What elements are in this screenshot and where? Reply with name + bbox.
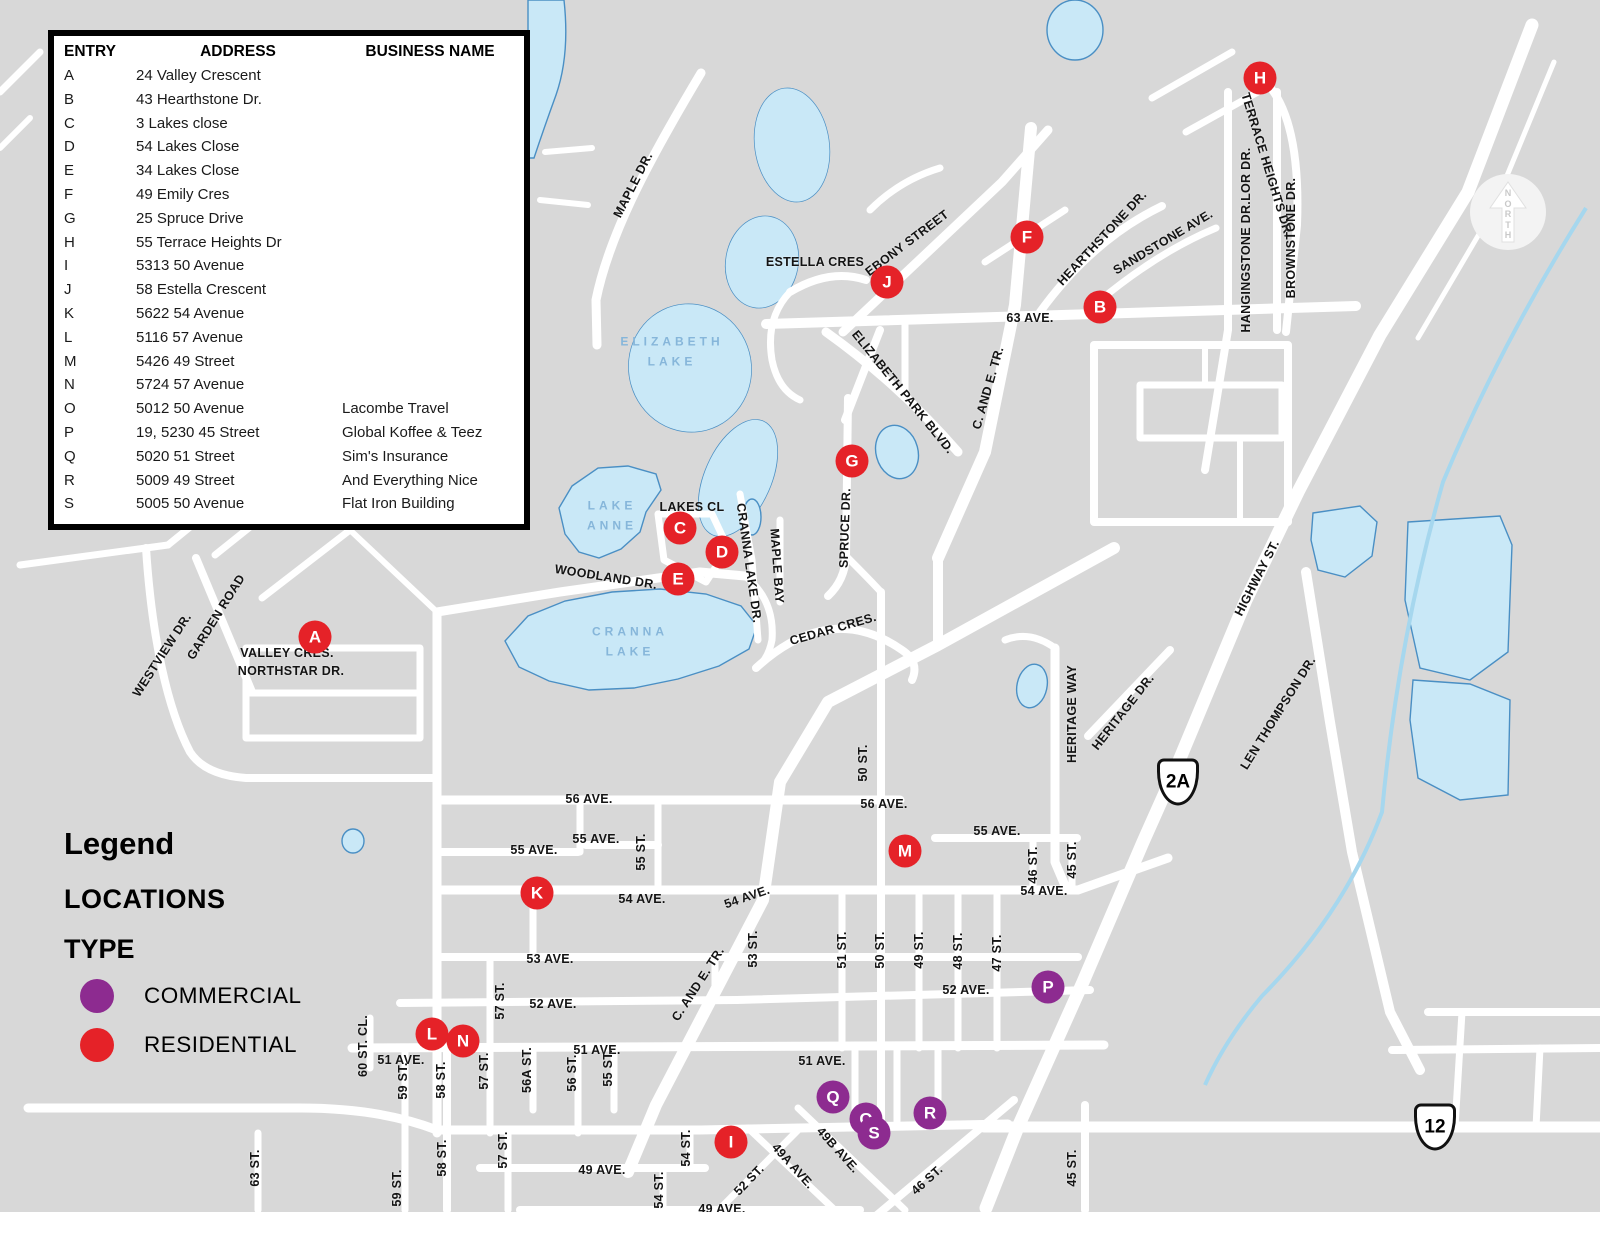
street-label: 58 ST. xyxy=(435,1139,449,1176)
col-header-address: ADDRESS xyxy=(134,43,342,61)
street-label: 55 ST. xyxy=(601,1049,615,1086)
creek xyxy=(1205,208,1586,1085)
cell-entry: P xyxy=(64,421,134,445)
cell-address: 19, 5230 45 Street xyxy=(134,421,342,445)
cell-business xyxy=(342,302,518,326)
cell-address: 58 Estella Crescent xyxy=(134,278,342,302)
street-label: 54 ST. xyxy=(679,1129,693,1166)
street-label: 54 AVE. xyxy=(1020,884,1067,898)
cell-entry: H xyxy=(64,231,134,255)
cell-entry: D xyxy=(64,135,134,159)
cell-address: 5426 49 Street xyxy=(134,350,342,374)
street-label: 47 ST. xyxy=(990,934,1004,971)
street-label: 50 ST. xyxy=(856,744,870,781)
cell-entry: K xyxy=(64,302,134,326)
commercial-dot-icon xyxy=(80,979,114,1013)
table-row: S5005 50 AvenueFlat Iron Building xyxy=(64,492,518,516)
cell-entry: Q xyxy=(64,445,134,469)
cell-business: Lacombe Travel xyxy=(342,397,518,421)
map-marker-I[interactable]: I xyxy=(715,1126,748,1159)
legend-title: Legend xyxy=(64,826,302,862)
table-header-row: ENTRY ADDRESS BUSINESS NAME xyxy=(54,36,524,62)
cell-entry: M xyxy=(64,350,134,374)
table-row: R5009 49 StreetAnd Everything Nice xyxy=(64,469,518,493)
map-marker-E[interactable]: E xyxy=(662,563,695,596)
street-label: 54 AVE. xyxy=(618,892,665,906)
cell-business: Global Koffee & Teez xyxy=(342,421,518,445)
table-row: J58 Estella Crescent xyxy=(64,278,518,302)
col-header-entry: ENTRY xyxy=(64,43,134,61)
cell-business xyxy=(342,112,518,136)
street-label: 55 AVE. xyxy=(510,843,557,857)
street-label: 59 ST. xyxy=(396,1062,410,1099)
street-label: 57 ST. xyxy=(493,982,507,1019)
street-label: 63 ST. xyxy=(248,1149,262,1186)
street-label: 53 AVE. xyxy=(526,952,573,966)
cell-entry: I xyxy=(64,254,134,278)
cell-address: 25 Spruce Drive xyxy=(134,207,342,231)
map-marker-Q[interactable]: Q xyxy=(817,1081,850,1114)
lake-name-label: CRANNALAKE xyxy=(592,622,668,663)
cell-entry: R xyxy=(64,469,134,493)
street-label: 63 AVE. xyxy=(1006,311,1053,325)
map-marker-H[interactable]: H xyxy=(1244,62,1277,95)
legend-subtitle: LOCATIONS xyxy=(64,884,302,915)
cell-address: 43 Hearthstone Dr. xyxy=(134,88,342,112)
table-row: P19, 5230 45 StreetGlobal Koffee & Teez xyxy=(64,421,518,445)
map-marker-S[interactable]: S xyxy=(858,1117,891,1150)
north-indicator: NORTH xyxy=(1470,174,1546,250)
street-label: 59 ST. xyxy=(390,1169,404,1206)
cell-business xyxy=(342,159,518,183)
street-label: 53 ST. xyxy=(746,930,760,967)
lake-name-label: LAKEANNE xyxy=(587,496,637,537)
table-row: F49 Emily Cres xyxy=(64,183,518,207)
cell-entry: O xyxy=(64,397,134,421)
street-label: 45 ST. xyxy=(1065,841,1079,878)
table-row: K5622 54 Avenue xyxy=(64,302,518,326)
legend-item-label: COMMERCIAL xyxy=(144,983,302,1009)
table-row: M5426 49 Street xyxy=(64,350,518,374)
cell-business: Sim's Insurance xyxy=(342,445,518,469)
street-label: HERITAGE WAY xyxy=(1065,665,1079,763)
locations-table: ENTRY ADDRESS BUSINESS NAME A24 Valley C… xyxy=(48,30,530,530)
cell-entry: J xyxy=(64,278,134,302)
map-marker-C[interactable]: C xyxy=(664,512,697,545)
map-marker-D[interactable]: D xyxy=(706,536,739,569)
street-label: 54 ST. xyxy=(652,1171,666,1208)
street-label: 48 ST. xyxy=(951,932,965,969)
cell-business xyxy=(342,207,518,231)
table-row: Q5020 51 StreetSim's Insurance xyxy=(64,445,518,469)
cell-address: 5622 54 Avenue xyxy=(134,302,342,326)
cell-address: 54 Lakes Close xyxy=(134,135,342,159)
table-row: N5724 57 Avenue xyxy=(64,373,518,397)
street-label: 46 ST. xyxy=(1026,846,1040,883)
street-label: 52 AVE. xyxy=(529,997,576,1011)
cell-entry: A xyxy=(64,64,134,88)
cell-business xyxy=(342,373,518,397)
cell-entry: S xyxy=(64,492,134,516)
street-label: NORTHSTAR DR. xyxy=(238,664,344,678)
map-marker-M[interactable]: M xyxy=(889,835,922,868)
cell-address: 3 Lakes close xyxy=(134,112,342,136)
cell-entry: B xyxy=(64,88,134,112)
street-label: 58 ST. xyxy=(434,1061,448,1098)
cell-entry: L xyxy=(64,326,134,350)
map-marker-G[interactable]: G xyxy=(836,445,869,478)
table-body: A24 Valley CrescentB43 Hearthstone Dr.C3… xyxy=(54,62,524,516)
legend-items: COMMERCIALRESIDENTIAL xyxy=(64,978,302,1063)
cell-business: And Everything Nice xyxy=(342,469,518,493)
cell-address: 24 Valley Crescent xyxy=(134,64,342,88)
street-label: 52 AVE. xyxy=(942,983,989,997)
map-marker-P[interactable]: P xyxy=(1032,971,1065,1004)
cell-business xyxy=(342,64,518,88)
cell-address: 5009 49 Street xyxy=(134,469,342,493)
cell-business xyxy=(342,350,518,374)
map-marker-R[interactable]: R xyxy=(914,1097,947,1130)
street-label: SPRUCE DR. xyxy=(837,488,854,569)
cell-address: 5116 57 Avenue xyxy=(134,326,342,350)
north-label: NORTH xyxy=(1504,188,1511,241)
street-label: BROWNSTONE DR. xyxy=(1284,178,1298,299)
street-label: 60 ST. CL. xyxy=(356,1015,370,1077)
cell-business xyxy=(342,88,518,112)
cell-entry: F xyxy=(64,183,134,207)
residential-dot-icon xyxy=(80,1028,114,1062)
cell-business: Flat Iron Building xyxy=(342,492,518,516)
street-label: 55 AVE. xyxy=(572,832,619,846)
map-marker-F[interactable]: F xyxy=(1011,221,1044,254)
table-row: O5012 50 AvenueLacombe Travel xyxy=(64,397,518,421)
cell-address: 5724 57 Avenue xyxy=(134,373,342,397)
street-label: 50 ST. xyxy=(873,931,887,968)
col-header-business: BUSINESS NAME xyxy=(342,43,518,61)
legend-panel: Legend LOCATIONS TYPE COMMERCIALRESIDENT… xyxy=(64,826,302,1063)
street-label: 49 ST. xyxy=(912,931,926,968)
legend-type-label: TYPE xyxy=(64,934,302,965)
map-marker-J[interactable]: J xyxy=(871,266,904,299)
map-page: MAPLE DR.ESTELLA CRESEBONY STREETHEARTHS… xyxy=(0,0,1600,1236)
cell-entry: N xyxy=(64,373,134,397)
street-label: 56A ST. xyxy=(520,1047,534,1093)
street-label: 45 ST. xyxy=(1065,1149,1079,1186)
cell-address: 34 Lakes Close xyxy=(134,159,342,183)
cell-business xyxy=(342,135,518,159)
table-row: C3 Lakes close xyxy=(64,112,518,136)
table-row: B43 Hearthstone Dr. xyxy=(64,88,518,112)
cell-address: 5012 50 Avenue xyxy=(134,397,342,421)
map-marker-N[interactable]: N xyxy=(447,1025,480,1058)
table-row: E34 Lakes Close xyxy=(64,159,518,183)
lake-name-label: ELIZABETHLAKE xyxy=(620,332,723,373)
cell-address: 5020 51 Street xyxy=(134,445,342,469)
street-label: 55 ST. xyxy=(634,833,648,870)
cell-entry: G xyxy=(64,207,134,231)
table-row: L5116 57 Avenue xyxy=(64,326,518,350)
cell-address: 5313 50 Avenue xyxy=(134,254,342,278)
street-label: 49 AVE. xyxy=(698,1202,745,1212)
table-row: G25 Spruce Drive xyxy=(64,207,518,231)
street-label: 57 ST. xyxy=(477,1052,491,1089)
cell-business xyxy=(342,254,518,278)
city-map[interactable]: MAPLE DR.ESTELLA CRESEBONY STREETHEARTHS… xyxy=(0,0,1600,1212)
map-marker-A[interactable]: A xyxy=(299,621,332,654)
legend-item-commercial: COMMERCIAL xyxy=(64,978,302,1014)
cell-entry: C xyxy=(64,112,134,136)
table-row: I5313 50 Avenue xyxy=(64,254,518,278)
street-label: LAKES CL xyxy=(660,500,725,514)
street-label: 56 ST. xyxy=(565,1054,579,1091)
legend-item-residential: RESIDENTIAL xyxy=(64,1027,302,1063)
street-label: ESTELLA CRES xyxy=(766,255,864,269)
street-label: 56 AVE. xyxy=(860,797,907,811)
cell-address: 55 Terrace Heights Dr xyxy=(134,231,342,255)
legend-item-label: RESIDENTIAL xyxy=(144,1032,297,1058)
map-marker-B[interactable]: B xyxy=(1084,291,1117,324)
cell-business xyxy=(342,231,518,255)
cell-entry: E xyxy=(64,159,134,183)
street-label: 55 AVE. xyxy=(973,824,1020,838)
map-marker-L[interactable]: L xyxy=(416,1018,449,1051)
map-marker-K[interactable]: K xyxy=(521,877,554,910)
table-row: H55 Terrace Heights Dr xyxy=(64,231,518,255)
cell-address: 49 Emily Cres xyxy=(134,183,342,207)
cell-business xyxy=(342,326,518,350)
table-row: A24 Valley Crescent xyxy=(64,64,518,88)
cell-business xyxy=(342,183,518,207)
street-label: 56 AVE. xyxy=(565,792,612,806)
street-label: 51 AVE. xyxy=(798,1054,845,1068)
street-label: 49 AVE. xyxy=(578,1163,625,1177)
street-label: 51 ST. xyxy=(835,931,849,968)
street-label: 57 ST. xyxy=(496,1131,510,1168)
street-label: HANGINGSTONE DR.LOR DR. xyxy=(1239,147,1253,332)
cell-address: 5005 50 Avenue xyxy=(134,492,342,516)
cell-business xyxy=(342,278,518,302)
table-row: D54 Lakes Close xyxy=(64,135,518,159)
